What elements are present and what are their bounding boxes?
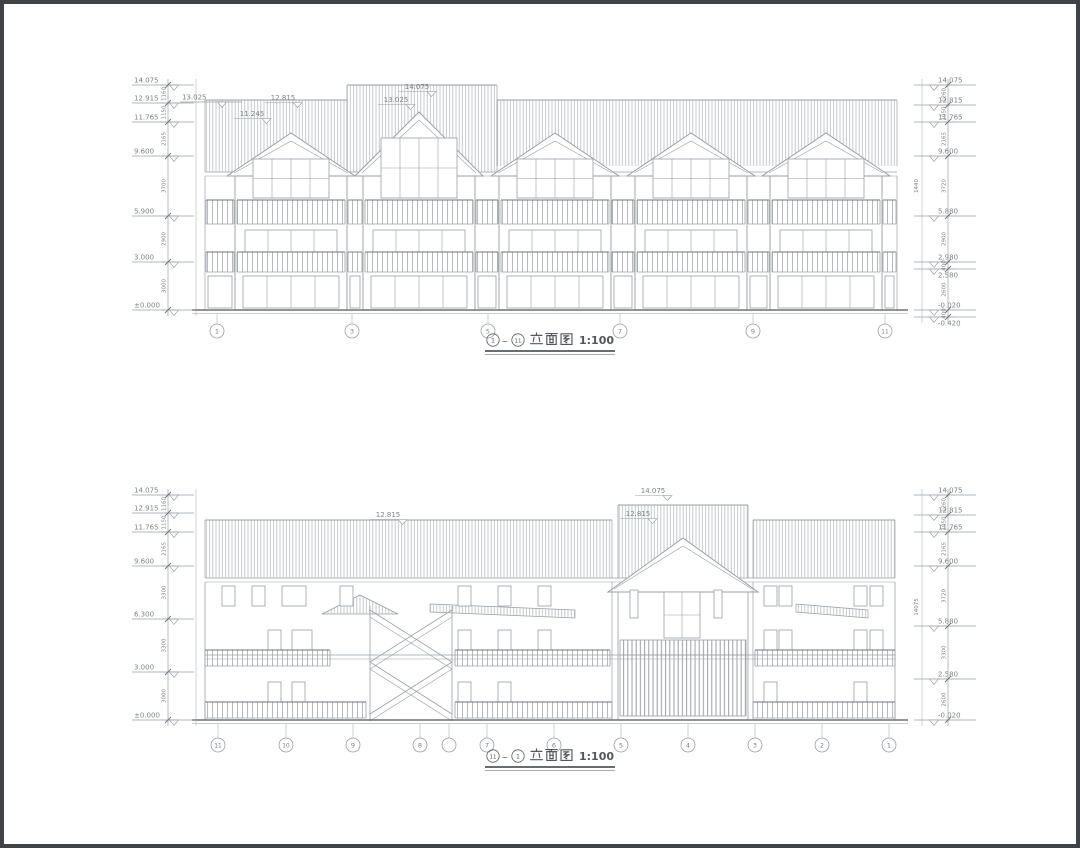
title-axis-number: 1	[516, 754, 520, 761]
railing-band	[772, 200, 880, 224]
railing-band	[348, 200, 362, 224]
level-label: -0.420	[938, 320, 961, 328]
dim-value: 400	[942, 260, 948, 271]
window	[854, 586, 867, 606]
railing-band	[365, 200, 473, 224]
roof-level-annotation: 14.075	[641, 487, 666, 495]
window	[764, 682, 777, 702]
level-marker-triangle	[930, 495, 939, 501]
level-label: 6.300	[134, 611, 154, 619]
window	[630, 590, 638, 618]
tower-slat-screen	[620, 640, 746, 716]
railing-band	[348, 252, 362, 272]
axis-number: 11	[214, 743, 222, 749]
level-label: 9.600	[134, 148, 154, 156]
axis-number: 1	[215, 327, 219, 335]
level-marker-triangle	[170, 513, 179, 519]
window	[350, 276, 360, 308]
level-marker-triangle	[170, 310, 179, 316]
railing-band	[206, 252, 234, 272]
dim-value: 3000	[162, 689, 168, 703]
axis-number: 1	[887, 741, 891, 749]
railing-band	[455, 650, 610, 666]
elevation-drawing-canvas: 14.07512.91511.7659.6005.9003.000±0.0001…	[4, 4, 1076, 844]
level-marker-triangle	[930, 532, 939, 538]
window	[458, 682, 471, 702]
level-marker-triangle	[930, 122, 939, 128]
cjk-glyph	[561, 750, 572, 761]
dim-value: 2165	[162, 542, 168, 556]
front-elevation-view	[192, 85, 908, 314]
railing-band	[748, 200, 769, 224]
dim-value: 3720	[942, 589, 948, 603]
level-marker-triangle	[170, 619, 179, 625]
railing-band	[637, 200, 745, 224]
window	[498, 630, 511, 650]
axis-number: 3	[350, 327, 354, 335]
window	[268, 682, 281, 702]
window	[779, 586, 792, 606]
axis-number: 9	[351, 741, 355, 749]
level-marker-triangle	[170, 262, 179, 268]
dim-value: 1440	[914, 179, 920, 193]
dim-value: 1050	[942, 106, 948, 120]
level-label: ±0.000	[134, 302, 160, 310]
axis-number: 6	[552, 741, 556, 749]
railing-band	[501, 252, 609, 272]
level-label: 12.915	[134, 505, 159, 513]
dim-value: 2165	[942, 542, 948, 556]
level-label: 5.900	[134, 208, 154, 216]
cjk-glyph	[561, 334, 572, 345]
dim-value: 3300	[162, 585, 168, 599]
railing-band	[772, 252, 880, 272]
stair-tower-roof	[322, 595, 398, 614]
dim-value: 400	[942, 308, 948, 319]
level-marker-triangle	[170, 532, 179, 538]
railing-band	[455, 702, 612, 718]
level-marker-triangle	[930, 515, 939, 521]
railing-band	[883, 200, 896, 224]
level-marker-triangle	[170, 216, 179, 222]
railing-band	[206, 200, 234, 224]
cjk-stroke	[539, 753, 540, 757]
window	[885, 276, 894, 308]
title-axis-number: 1	[491, 338, 495, 345]
title-scale: 1:100	[579, 334, 614, 347]
title-scale: 1:100	[579, 750, 614, 763]
window	[870, 630, 883, 650]
window	[498, 586, 511, 606]
dim-value: 1260	[942, 498, 948, 512]
level-marker-triangle	[170, 720, 179, 726]
window	[478, 276, 496, 308]
level-label: 12.915	[134, 95, 159, 103]
axis-number: 7	[618, 327, 622, 335]
window	[854, 682, 867, 702]
cjk-glyph	[531, 333, 543, 344]
level-marker-triangle	[930, 262, 939, 268]
level-marker-triangle	[930, 310, 939, 316]
dim-value: 3000	[162, 279, 168, 293]
front-elevation-title: 1~111:100	[485, 333, 615, 354]
level-marker-triangle	[930, 720, 939, 726]
window	[458, 630, 471, 650]
axis-number: 9	[751, 327, 755, 335]
axis-number: 11	[881, 329, 889, 335]
level-marker-triangle	[170, 103, 179, 109]
railing-band	[476, 252, 498, 272]
railing-band	[753, 702, 895, 718]
window	[458, 586, 471, 606]
level-marker-triangle	[170, 672, 179, 678]
railing-band	[883, 252, 896, 272]
dim-value: 2900	[942, 232, 948, 246]
axis-number: 5	[486, 327, 490, 335]
window	[498, 682, 511, 702]
level-marker-triangle	[930, 216, 939, 222]
dim-value: 1150	[162, 515, 168, 529]
level-marker-triangle	[170, 85, 179, 91]
window	[292, 630, 312, 650]
drawing-sheet: 14.07512.91511.7659.6005.9003.000±0.0001…	[0, 0, 1080, 848]
cjk-glyph	[546, 750, 557, 761]
dim-value: 2165	[942, 132, 948, 146]
axis-number: 2	[820, 741, 824, 749]
cjk-glyph	[531, 749, 543, 760]
overall-dim-value: 14075	[914, 598, 920, 616]
dim-value: 3700	[162, 179, 168, 193]
level-label: 14.075	[134, 77, 159, 85]
level-marker-triangle	[170, 566, 179, 572]
railing-band	[365, 252, 473, 272]
window	[538, 586, 551, 606]
window	[292, 682, 305, 702]
level-label: 11.765	[134, 524, 159, 532]
window	[750, 276, 767, 308]
railing-band	[501, 200, 609, 224]
roof-level-annotation: 13.025	[384, 96, 409, 104]
axis-bubble	[442, 738, 456, 752]
cjk-stroke	[533, 753, 534, 757]
dim-value: 1150	[162, 105, 168, 119]
cjk-stroke	[566, 758, 567, 759]
window	[538, 630, 551, 650]
axis-number: 8	[418, 741, 422, 749]
roof-hatch	[753, 520, 895, 578]
window	[764, 630, 777, 650]
title-axis-number: 11	[515, 339, 522, 345]
title-tilde: ~	[502, 753, 509, 762]
cjk-stroke	[539, 337, 540, 341]
level-marker-triangle	[930, 156, 939, 162]
level-label: 9.600	[134, 558, 154, 566]
cjk-stroke	[533, 337, 534, 341]
roof-level-annotation: 12.815	[626, 510, 651, 518]
window	[614, 276, 632, 308]
cjk-glyph	[546, 334, 557, 345]
window	[340, 586, 353, 606]
level-label: 13.025	[182, 94, 207, 102]
axis-number: 4	[686, 741, 690, 749]
level-marker-triangle	[930, 679, 939, 685]
cjk-stroke	[566, 340, 567, 341]
railing-band	[612, 252, 634, 272]
roof-level-annotation: 11.245	[240, 110, 265, 118]
dim-value: 1050	[942, 516, 948, 530]
dim-value: 1160	[162, 497, 168, 511]
annotation-triangle	[663, 496, 672, 501]
window	[764, 586, 777, 606]
title-axis-number: 11	[490, 755, 497, 761]
window	[779, 630, 792, 650]
railing-band	[748, 252, 769, 272]
axis-number: 5	[619, 741, 623, 749]
axis-number: 3	[753, 741, 757, 749]
railing-band	[637, 252, 745, 272]
window	[208, 276, 232, 308]
dim-value: 3720	[942, 179, 948, 193]
roof-level-annotation: 12.815	[376, 511, 401, 519]
cjk-stroke	[566, 756, 567, 757]
roof-level-annotation: 12.815	[271, 94, 296, 102]
railing-band	[612, 200, 634, 224]
dim-value: 1160	[162, 87, 168, 101]
level-marker-triangle	[930, 626, 939, 632]
level-marker-triangle	[930, 105, 939, 111]
railing-band	[476, 200, 498, 224]
railing-band	[205, 650, 330, 666]
dim-value: 2600	[942, 282, 948, 296]
level-marker-triangle	[170, 156, 179, 162]
level-label: 3.000	[134, 664, 154, 672]
dim-value: 1260	[942, 88, 948, 102]
dim-value: 2900	[162, 232, 168, 246]
window	[854, 630, 867, 650]
level-marker-triangle	[170, 495, 179, 501]
dim-value: 3300	[162, 638, 168, 652]
window	[268, 630, 281, 650]
roof-level-annotation: 14.075	[405, 83, 430, 91]
level-label: 11.765	[134, 114, 159, 122]
level-label: 14.075	[134, 487, 159, 495]
rear-elevation-view	[192, 505, 908, 724]
title-tilde: ~	[502, 337, 509, 346]
level-marker-triangle	[930, 566, 939, 572]
dim-value: 2600	[942, 692, 948, 706]
railing-band	[205, 702, 366, 718]
window	[252, 586, 265, 606]
rear-elevation-title: 11~11:100	[485, 749, 615, 770]
railing-band	[237, 200, 345, 224]
dim-value: 3300	[942, 645, 948, 659]
axis-number: 10	[282, 743, 290, 749]
level-marker-triangle	[930, 85, 939, 91]
railing-band	[755, 650, 895, 666]
axis-number: 7	[485, 741, 489, 749]
window	[714, 590, 722, 618]
level-marker-triangle	[170, 122, 179, 128]
level-label: 3.000	[134, 254, 154, 262]
window	[282, 586, 306, 606]
window	[870, 586, 883, 606]
dim-value: 2165	[162, 132, 168, 146]
roof-hatch	[205, 520, 612, 578]
cjk-stroke	[566, 342, 567, 343]
window	[222, 586, 235, 606]
level-label: ±0.000	[134, 712, 160, 720]
railing-band	[237, 252, 345, 272]
